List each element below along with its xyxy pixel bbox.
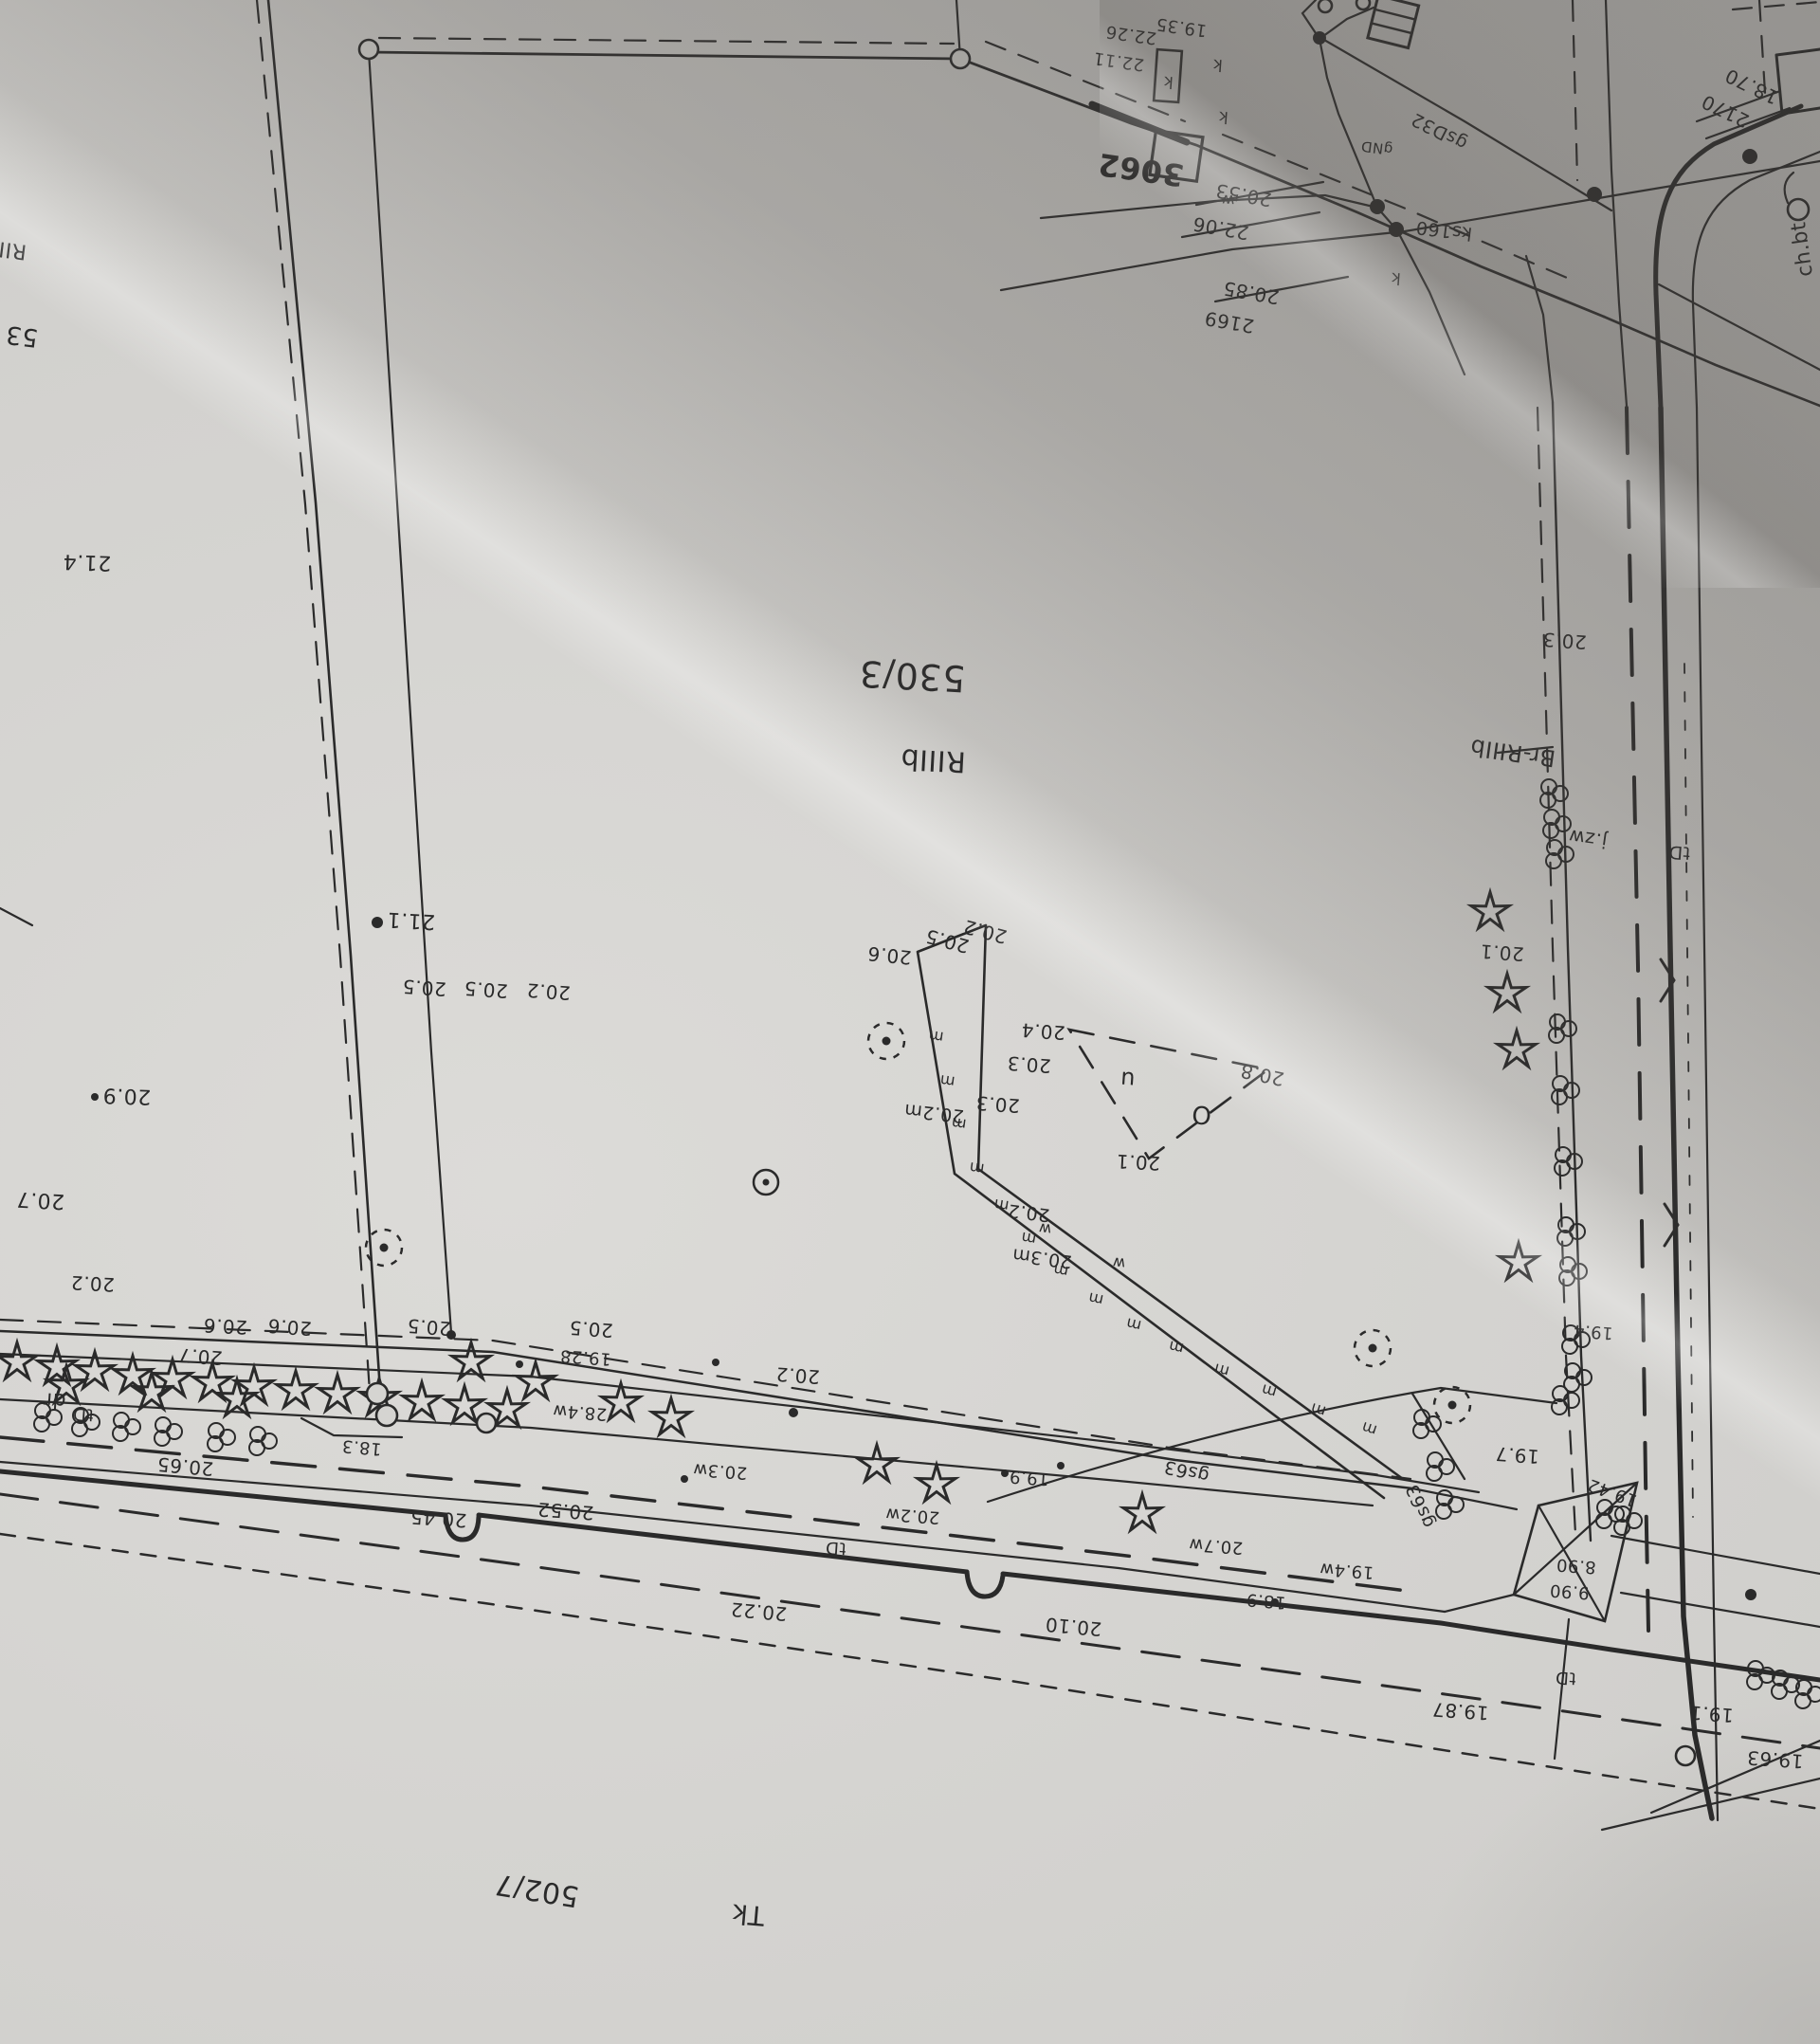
conifer-tree-icon	[1488, 974, 1526, 1010]
map-label: m	[1259, 1380, 1279, 1402]
map-label: 20.3	[1541, 628, 1587, 653]
conifer-tree-icon	[1471, 892, 1509, 928]
map-label: 20.5	[463, 976, 508, 1002]
conifer-tree-icon	[235, 1367, 273, 1403]
map-label: m	[1308, 1399, 1328, 1421]
point-dot-icon	[681, 1475, 688, 1483]
map-label: 20.6	[203, 1314, 248, 1339]
conifer-tree-icon	[652, 1398, 690, 1434]
map-label: 19.1	[1688, 1701, 1734, 1726]
map-label: 20.2w	[884, 1504, 940, 1527]
conifer-tree-icon	[517, 1362, 555, 1398]
survey-point-icon	[367, 1383, 388, 1404]
bush-row-icon	[1614, 1506, 1642, 1535]
map-label: 20.7	[177, 1343, 223, 1369]
bush-row-icon	[249, 1427, 277, 1455]
map-label: gs63	[1402, 1481, 1439, 1531]
map-label: 19.4	[1573, 1321, 1613, 1343]
map-label: 20.4	[1020, 1018, 1065, 1044]
conifer-tree-icon	[1500, 1243, 1538, 1279]
conifer-tree-icon	[403, 1382, 441, 1418]
map-label: j.zw	[1567, 825, 1610, 853]
bush-row-icon	[1549, 1014, 1576, 1043]
map-label: 8.90	[1556, 1555, 1596, 1578]
map-label: 20.9	[102, 1083, 152, 1108]
point-dot-icon	[1001, 1469, 1009, 1477]
conifer-tree-icon	[0, 1342, 36, 1378]
map-label: Tk	[730, 1898, 766, 1932]
map-label: 53	[4, 319, 39, 352]
map-label: m	[1167, 1337, 1186, 1358]
conifer-tree-icon	[218, 1379, 256, 1415]
map-label: 20.6	[266, 1314, 312, 1340]
map-label: 19.7	[1494, 1442, 1539, 1468]
survey-point-icon	[376, 1405, 397, 1426]
conifer-tree-icon	[318, 1375, 356, 1411]
map-label: RII	[0, 236, 28, 263]
map-label: 20.52	[537, 1498, 594, 1524]
cadastral-map-sheet: 530/3RIIIb502/7TkBr-RIIIbj.zwch.bttDtDtD…	[0, 0, 1820, 2044]
map-label: w	[1111, 1253, 1126, 1273]
map-label: 20.5	[568, 1316, 613, 1341]
map-label: m	[992, 1195, 1010, 1215]
bush-row-icon	[1552, 1076, 1579, 1104]
map-label: RIIIb	[900, 741, 967, 778]
point-dot-icon	[516, 1360, 523, 1368]
map-label: 21.1	[387, 907, 436, 934]
survey-point-icon	[359, 40, 378, 59]
map-label: tD	[825, 1537, 846, 1558]
map-label: m	[938, 1071, 956, 1091]
map-label: 20.7w	[1188, 1534, 1244, 1558]
map-label: Br-RIIIb	[1468, 734, 1557, 772]
map-label: 28.4w	[552, 1400, 608, 1424]
point-dot-icon	[1745, 1589, 1756, 1600]
point-dot-icon	[712, 1359, 719, 1366]
map-label: w	[1037, 1219, 1052, 1239]
map-label: m	[1211, 1360, 1230, 1381]
map-label: 20.1	[1116, 1150, 1161, 1175]
paper-crease-shadow	[1100, 0, 1820, 588]
map-label: 9.90	[1549, 1580, 1590, 1603]
map-label: 20.6	[866, 942, 913, 970]
bush-row-icon	[1564, 1363, 1592, 1392]
map-label: 20.2	[525, 978, 571, 1004]
map-label: 502/7	[493, 1867, 581, 1912]
map-label: 20.10	[1045, 1613, 1103, 1640]
deciduous-tree-icon	[1434, 1387, 1470, 1423]
map-label: m	[1359, 1418, 1379, 1440]
map-label: 20.45	[409, 1506, 467, 1532]
map-label: m	[1019, 1229, 1037, 1250]
conifer-tree-icon	[858, 1445, 896, 1481]
map-label: 21.4	[63, 549, 112, 575]
map-label: 18.9	[1246, 1589, 1287, 1613]
map-label: 530/3	[858, 652, 966, 700]
map-label: 19.28	[559, 1345, 611, 1369]
map-label: 20.3	[974, 1091, 1020, 1117]
map-label: O	[1191, 1099, 1212, 1128]
map-label: tD	[72, 1403, 94, 1424]
map-label: 20.3w	[692, 1459, 748, 1483]
map-label: 19.9	[1009, 1467, 1049, 1489]
map-label: 20.7	[16, 1187, 65, 1214]
map-label: m	[950, 1114, 968, 1134]
bush-row-icon	[208, 1423, 235, 1451]
bush-row-icon	[155, 1417, 182, 1446]
point-dot-icon	[789, 1408, 798, 1417]
point-dot-icon	[1057, 1462, 1065, 1469]
map-label: 19.63	[1746, 1746, 1804, 1773]
map-label: 20.3	[1006, 1051, 1051, 1077]
map-label: 20.5	[401, 975, 446, 1000]
map-label: m	[1086, 1288, 1105, 1309]
map-label: 20.5	[406, 1314, 451, 1340]
conifer-tree-icon	[918, 1465, 955, 1501]
map-label: 19.87	[1431, 1698, 1489, 1725]
deciduous-tree-icon	[1355, 1330, 1391, 1366]
map-label: 19.4w	[1319, 1559, 1374, 1582]
map-label: m	[1124, 1314, 1143, 1335]
conifer-tree-icon	[1498, 1031, 1536, 1067]
map-label: 20.1	[1479, 940, 1524, 965]
bush-row-icon	[1543, 810, 1571, 838]
point-dot-icon	[91, 1093, 99, 1101]
map-label: 18.3	[341, 1435, 383, 1459]
conifer-tree-icon	[277, 1371, 315, 1407]
map-label: 20.22	[730, 1597, 789, 1625]
survey-point-icon	[1676, 1746, 1695, 1765]
map-label: m	[927, 1027, 945, 1047]
tree-icon	[754, 1170, 778, 1195]
conifer-tree-icon	[1123, 1494, 1161, 1530]
bush-row-icon	[1747, 1661, 1774, 1689]
map-label: u	[1119, 1066, 1137, 1093]
map-label: 20.2	[70, 1271, 116, 1296]
map-label: tD	[1555, 1667, 1576, 1688]
deciduous-tree-icon	[868, 1023, 904, 1059]
bush-row-icon	[113, 1413, 140, 1441]
survey-point-icon	[477, 1414, 496, 1433]
survey-point-icon	[951, 49, 970, 68]
map-label: dr	[42, 1387, 66, 1413]
point-dot-icon	[372, 917, 383, 928]
map-label: m	[968, 1159, 986, 1178]
map-label: 20.2	[774, 1362, 820, 1388]
map-label: tD	[1667, 841, 1691, 864]
